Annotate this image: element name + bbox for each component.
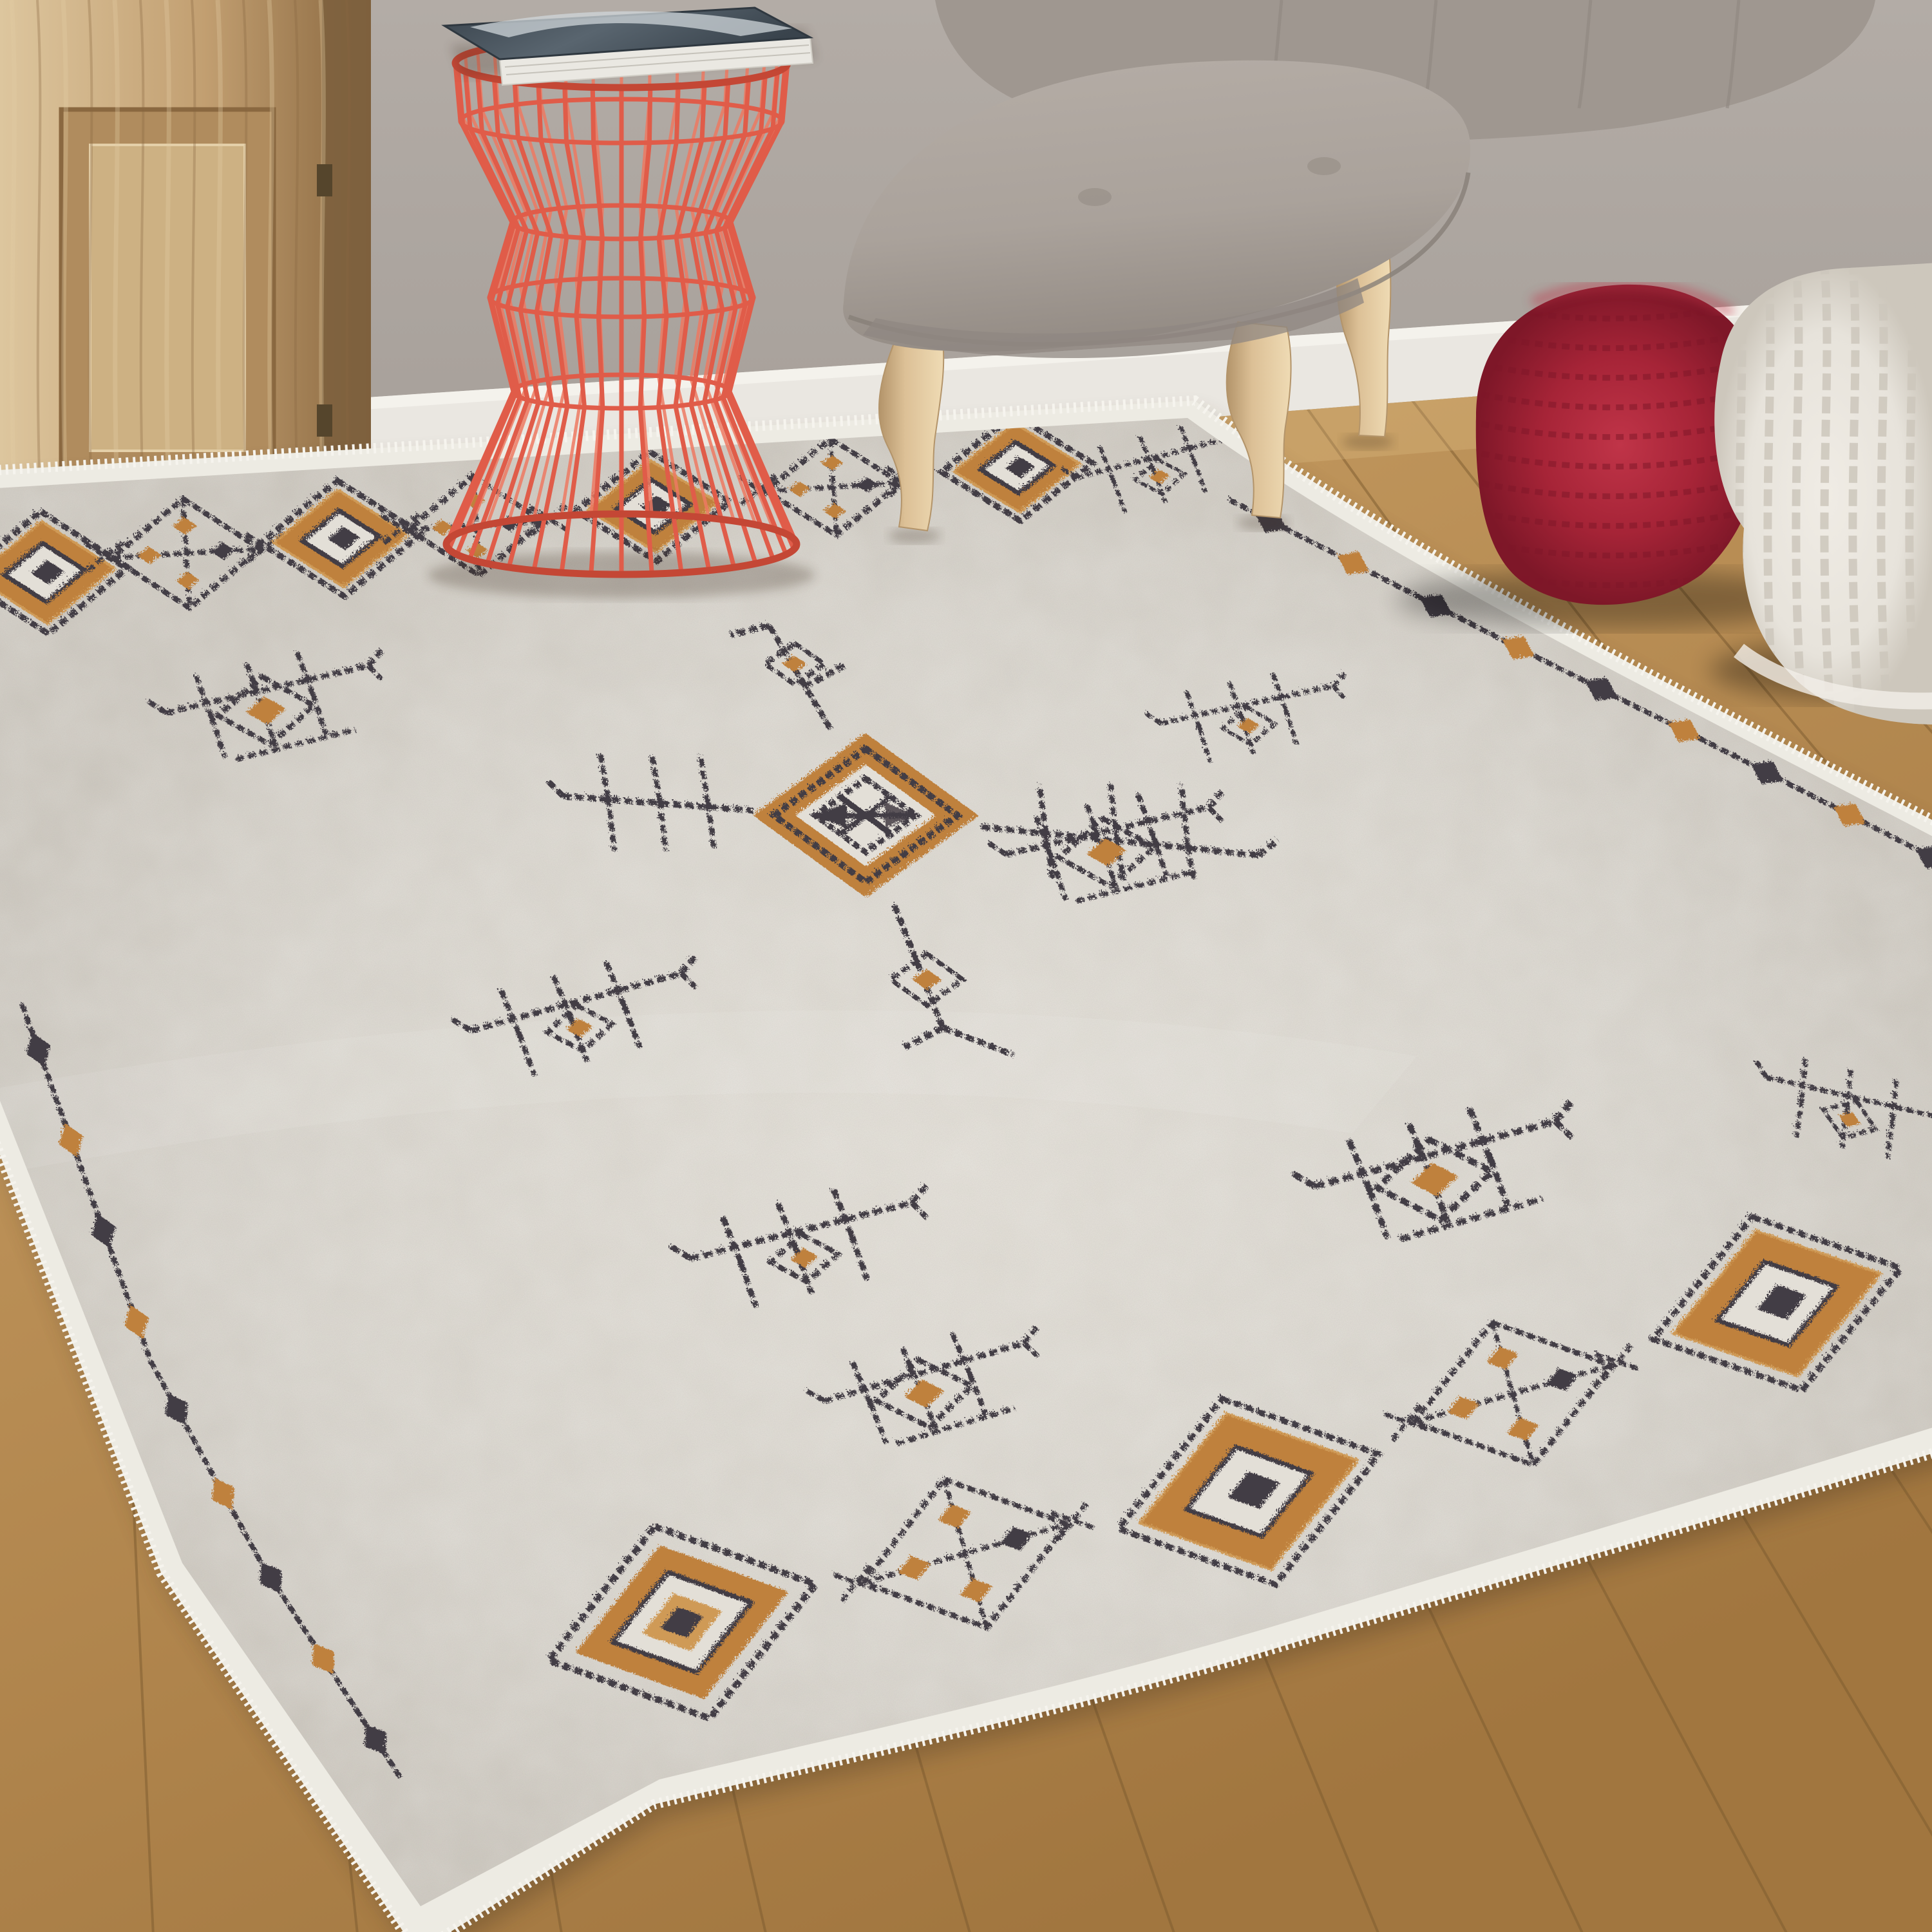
- chair-tuft-dimple: [1078, 188, 1112, 206]
- chair-leg-shadow: [889, 528, 940, 544]
- living-room-photo: [0, 0, 1932, 1932]
- cabinet-hinge: [317, 404, 332, 437]
- cabinet-hinge: [317, 164, 332, 196]
- screenshot-root: [0, 0, 1932, 1932]
- chair-leg-shadow: [1238, 515, 1289, 531]
- chair-tuft-dimple: [1307, 157, 1341, 175]
- white-knit-pouf: [1710, 258, 1932, 728]
